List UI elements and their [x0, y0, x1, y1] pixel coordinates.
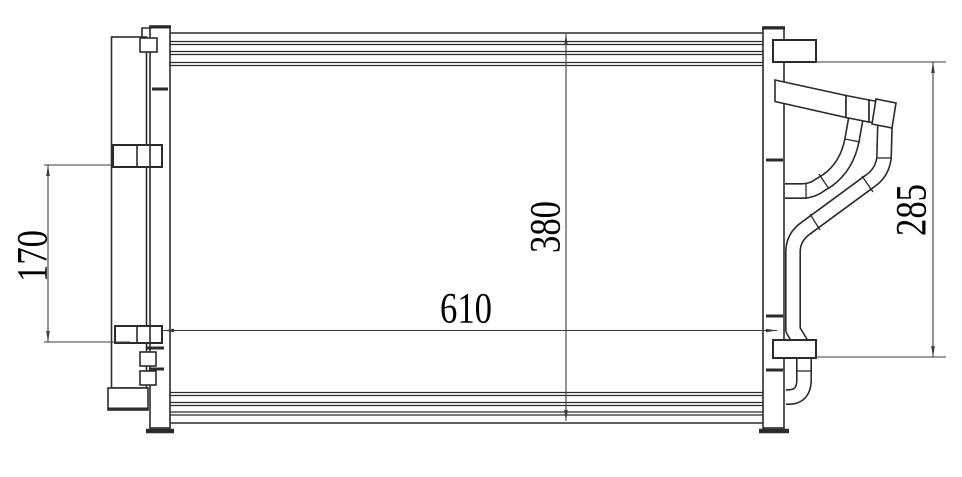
technical-drawing-canvas: 170 380 610 285: [0, 0, 962, 477]
arrowhead-up: [564, 34, 568, 45]
mounting-bracket-upper-right: [773, 40, 816, 62]
dimension-label-285: 285: [889, 184, 936, 236]
arrowhead-down: [931, 346, 935, 357]
dimension-core-height: 380: [523, 34, 570, 421]
duct-end-fitting: [872, 99, 896, 128]
dimension-core-width: 610: [163, 286, 777, 333]
duct-segment: [846, 96, 869, 123]
drier-bottom-cap: [108, 388, 148, 410]
dimension-label-380: 380: [523, 201, 570, 253]
dimension-label-170: 170: [10, 230, 57, 282]
fitting-block: [140, 371, 156, 385]
arrowhead-up: [931, 62, 935, 73]
duct-segment: [775, 80, 846, 118]
mounting-bracket-lower-right: [773, 340, 816, 358]
condenser-technical-drawing: 170 380 610 285: [0, 0, 962, 477]
inlet-duct: [775, 80, 896, 128]
fitting-block: [140, 352, 156, 366]
condenser-core: [170, 33, 763, 423]
dimension-label-610: 610: [440, 286, 492, 333]
arrowhead-down: [46, 331, 50, 342]
refrigerant-pipe-upper: [785, 112, 860, 199]
mounting-bracket-upper-left: [113, 145, 162, 167]
mounting-bracket-lower-left: [115, 326, 162, 343]
drier-top-clamp: [140, 38, 157, 52]
arrowhead-up: [46, 165, 50, 176]
